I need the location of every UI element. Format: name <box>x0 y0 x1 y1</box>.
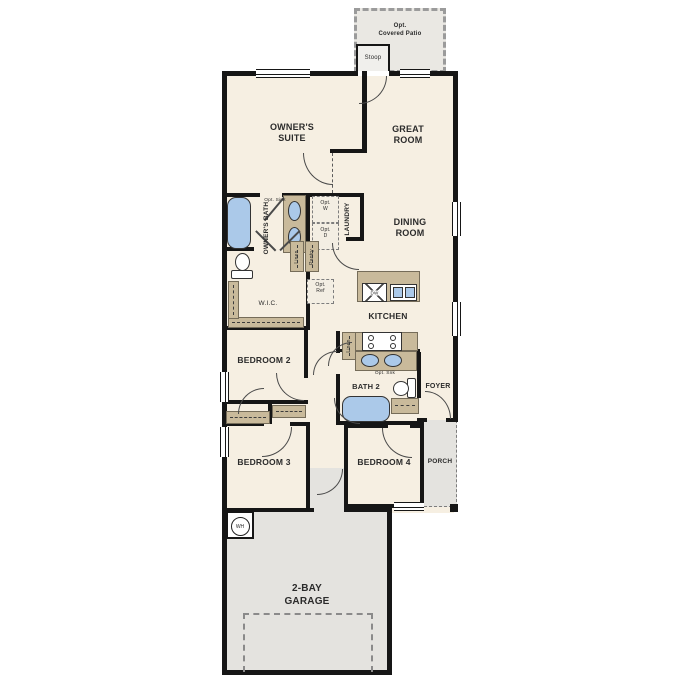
window <box>452 202 461 236</box>
pantry-closet: Pantry <box>305 241 319 272</box>
floor-plan: Opt. Covered Patio Stoop <box>0 0 687 687</box>
wall <box>330 149 367 153</box>
foyer-label: FOYER <box>419 383 457 392</box>
bedroom2-closet <box>272 405 306 418</box>
kitchen-sink <box>390 284 417 301</box>
wic-shelf <box>228 317 304 328</box>
door-opening-line <box>332 153 333 193</box>
patio-label-line2: Covered Patio <box>357 31 443 39</box>
kitchen-sink-basin <box>405 287 415 298</box>
kitchen-sink-basin <box>393 287 403 298</box>
stoop-label: Stoop <box>358 55 388 63</box>
bath2-toilet-bowl <box>393 381 409 396</box>
window <box>220 427 229 457</box>
wall <box>450 504 458 512</box>
great-room-label: GREAT ROOM <box>377 124 439 147</box>
kitchen-label: KITCHEN <box>350 311 426 322</box>
water-heater: WH <box>231 517 250 536</box>
owners-toilet-bowl <box>235 253 250 271</box>
optional-washer-label: Opt. W <box>319 200 333 213</box>
opt-snk-label: Opt. Snk <box>362 371 408 377</box>
porch-label: PORCH <box>423 458 457 466</box>
bedroom4-label: BEDROOM 4 <box>346 457 422 468</box>
owners-bath-sink <box>288 201 301 221</box>
window <box>394 502 424 511</box>
wall <box>222 400 308 404</box>
window <box>256 69 310 78</box>
owners-toilet-tank <box>231 270 253 279</box>
owners-bath-label: OWNER'S BATH <box>263 198 271 258</box>
stoop: Stoop <box>356 44 390 74</box>
coat-closet <box>391 398 419 414</box>
bath2-sink <box>384 354 402 367</box>
laundry-label: LAUNDRY <box>344 189 352 249</box>
patio-label: Opt. Covered Patio <box>357 23 443 38</box>
owners-suite-label: OWNER'S SUITE <box>258 122 326 145</box>
optional-refrigerator-label: Opt. Ref <box>312 282 330 295</box>
dining-room-label: DINING ROOM <box>381 217 439 240</box>
wall <box>453 71 458 422</box>
opt-sink-label: Opt. Sink <box>263 198 287 204</box>
bath2-sink <box>361 354 379 367</box>
window <box>452 302 461 336</box>
wall <box>344 508 392 512</box>
optional-refrigerator: Opt. Ref <box>307 279 334 304</box>
burner <box>368 335 374 341</box>
bedroom3-label: BEDROOM 3 <box>222 457 306 468</box>
optional-washer: Opt. W <box>312 196 339 223</box>
pantry-closet-label: Pantry <box>309 249 315 265</box>
wall <box>360 193 364 241</box>
window <box>220 372 229 402</box>
garage-door <box>243 613 373 672</box>
optional-dryer-label: Opt. D <box>319 227 333 240</box>
water-heater-label: WH <box>236 524 244 530</box>
wall <box>387 512 392 675</box>
owners-bath-tub <box>227 197 251 249</box>
bedroom2-label: BEDROOM 2 <box>224 355 304 366</box>
burner <box>390 343 396 349</box>
burner <box>390 335 396 341</box>
wic-label: W.I.C. <box>238 300 298 308</box>
burner <box>368 343 374 349</box>
water-heater-box: WH <box>226 511 254 539</box>
wall <box>304 326 308 378</box>
window <box>400 69 430 78</box>
range <box>362 332 402 351</box>
dishwasher: DW <box>362 283 387 302</box>
wall <box>306 422 310 512</box>
linen-closet: Linen <box>290 241 304 272</box>
patio-label-line1: Opt. <box>357 23 443 31</box>
linen-closet-label: Linen <box>294 250 300 263</box>
dishwasher-label: DW <box>369 290 379 295</box>
garage-label: 2-BAY GARAGE <box>272 583 342 608</box>
bath2-label: BATH 2 <box>341 382 391 391</box>
